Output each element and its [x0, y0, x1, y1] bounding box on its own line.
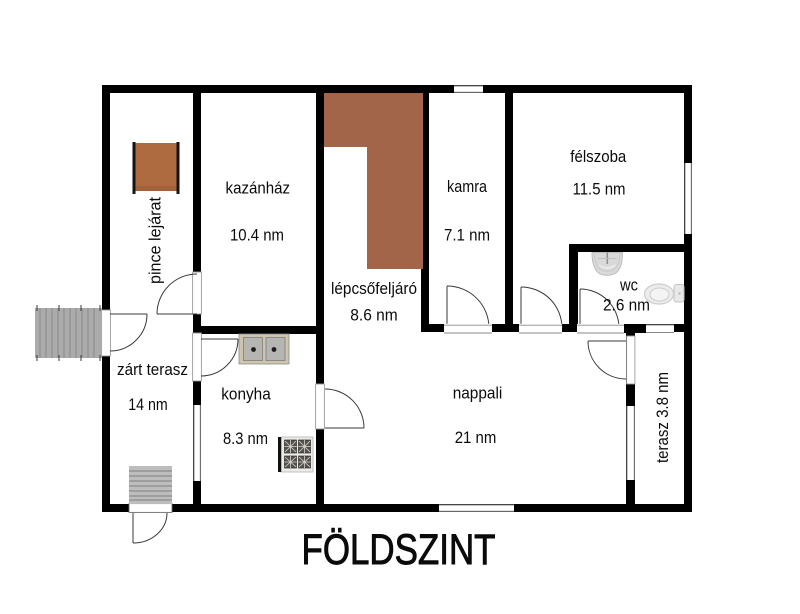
svg-text:zárt terasz: zárt terasz	[117, 360, 188, 379]
svg-text:11.5 nm: 11.5 nm	[573, 180, 626, 199]
svg-text:8.6 nm: 8.6 nm	[350, 306, 398, 325]
svg-text:nappali: nappali	[453, 384, 503, 403]
svg-text:10.4 nm: 10.4 nm	[230, 226, 284, 245]
svg-text:félszoba: félszoba	[570, 147, 626, 166]
svg-text:konyha: konyha	[221, 385, 271, 404]
svg-text:pince lejárat: pince lejárat	[146, 197, 165, 284]
svg-text:2.6 nm: 2.6 nm	[603, 296, 650, 315]
svg-text:7.1 nm: 7.1 nm	[444, 226, 490, 245]
svg-text:21 nm: 21 nm	[455, 428, 497, 447]
svg-text:FÖLDSZINT: FÖLDSZINT	[302, 526, 496, 574]
svg-text:14 nm: 14 nm	[128, 395, 168, 414]
svg-text:8.3 nm: 8.3 nm	[223, 429, 268, 448]
svg-text:kamra: kamra	[447, 177, 487, 196]
svg-text:terasz 3.8 nm: terasz 3.8 nm	[653, 372, 672, 463]
svg-text:kazánház: kazánház	[226, 179, 291, 198]
svg-text:lépcsőfeljáró: lépcsőfeljáró	[331, 279, 417, 298]
svg-text:wc: wc	[619, 276, 638, 295]
